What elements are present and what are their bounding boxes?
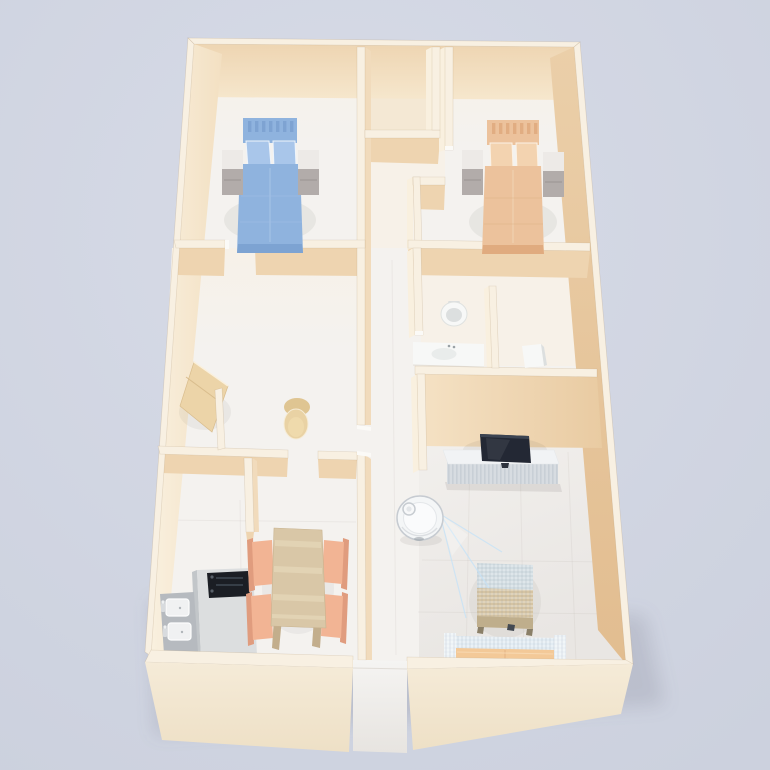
pillow: [273, 141, 296, 168]
remote: [507, 624, 515, 631]
cooktop: [207, 571, 250, 598]
dining-chair: [247, 538, 274, 592]
nightstand-left: [462, 150, 483, 195]
pillow: [246, 141, 271, 168]
north-wall-face: [194, 44, 574, 100]
dining-chair: [246, 592, 273, 646]
pillow: [490, 143, 513, 170]
nightstand-right: [298, 150, 319, 195]
pillow: [516, 143, 538, 170]
entrance-doorway: [353, 660, 407, 753]
double-sink: [160, 592, 198, 654]
front-face-left: [145, 662, 353, 752]
bathroom-fixture-small: [522, 344, 547, 368]
robot-sensor-notch: [414, 537, 424, 541]
vanity-sink: [413, 342, 484, 367]
nightstand-right: [543, 152, 564, 197]
dining-chair: [322, 538, 349, 590]
nightstand-left: [222, 150, 243, 195]
study-chair: [284, 398, 310, 439]
floor-plan-stage: [0, 0, 770, 770]
floor-plan-render: [0, 0, 770, 770]
